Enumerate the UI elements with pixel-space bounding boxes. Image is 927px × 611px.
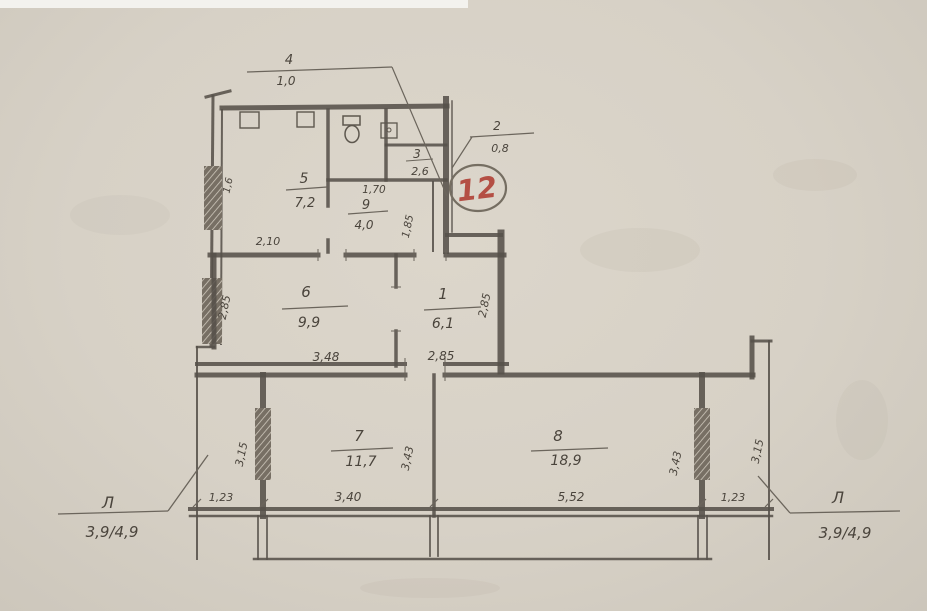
room-9: 1,70 9 4,0 1,85: [348, 184, 416, 239]
apartment-number-stamp: 12: [450, 165, 506, 211]
room-2-number: 2: [493, 119, 501, 133]
floor-plan-drawing: 4 1,0 2 0,8 12 5 7,2 2,10 1,6 1,70: [0, 0, 927, 611]
bathroom-fixtures: [240, 112, 397, 143]
loggia-right-label: Л: [831, 488, 844, 507]
dim-room8-bottom: 5,52: [558, 490, 585, 504]
room-1-area: 6,1: [432, 316, 454, 332]
dim-room1-bottom: 2,85: [428, 349, 455, 363]
room-6-number: 6: [301, 283, 311, 301]
dim-right-wall: 3,15: [749, 438, 767, 465]
room-7-number: 7: [354, 427, 364, 445]
window-hatch-upper-left-1: [204, 166, 222, 230]
loggia-right-size: 3,9/4,9: [819, 524, 872, 542]
room-6: 6 9,9 3,48 2,85: [216, 283, 348, 364]
scanned-floor-plan-page: 4 1,0 2 0,8 12 5 7,2 2,10 1,6 1,70: [0, 0, 927, 611]
dimension-ticks: [193, 499, 773, 507]
window-hatch-room8: [694, 408, 710, 480]
room-5-area: 7,2: [295, 196, 316, 211]
loggia-left-label: Л: [101, 493, 114, 512]
washbasin-icon: [381, 123, 397, 138]
dim-room9-side: 1,85: [400, 213, 417, 239]
walls-lower-block: [190, 338, 773, 559]
paper-smudges: [70, 159, 888, 598]
room-3-number: 3: [413, 147, 421, 161]
loggia-left-size: 3,9/4,9: [86, 523, 139, 541]
room-7-area: 11,7: [345, 454, 376, 470]
apartment-number: 12: [455, 170, 499, 209]
room-8-number: 8: [553, 427, 563, 445]
loggia-left-leader-line: [168, 455, 208, 511]
room-5-number: 5: [300, 171, 309, 187]
room-6-area: 9,9: [298, 315, 320, 331]
loggia-callout-left: Л 3,9/4,9: [58, 455, 208, 541]
dim-room5-bottom: 2,10: [256, 235, 281, 248]
room-4-area: 1,0: [276, 74, 295, 88]
loggia-callout-right: Л 3,9/4,9: [758, 476, 900, 542]
dim-room6-bottom: 3,48: [313, 350, 340, 364]
room-1-number: 1: [438, 285, 448, 303]
kitchen-stove-icon: [297, 112, 314, 127]
toilet-icon: [345, 126, 359, 143]
dim-room9-top: 1,70: [362, 184, 386, 196]
room-3-area: 2,6: [411, 165, 429, 178]
dim-loggia-left-depth: 1,23: [209, 491, 234, 504]
room-8-area: 18,9: [550, 453, 581, 469]
dim-loggia-right-depth: 1,23: [721, 491, 746, 504]
callout-room-2: 2 0,8: [452, 119, 534, 168]
kitchen-sink-icon: [240, 112, 259, 128]
dim-room5-window: 1,6: [222, 177, 236, 195]
room-4-number: 4: [285, 53, 293, 68]
window-hatch-room7: [255, 408, 271, 480]
room-9-area: 4,0: [354, 218, 373, 232]
room-3: 3 2,6: [406, 147, 433, 178]
room-1: 1 6,1 2,85 2,85: [424, 285, 493, 363]
room-2-area: 0,8: [491, 142, 509, 155]
room-5: 5 7,2 2,10 1,6: [222, 171, 327, 248]
toilet-tank: [343, 116, 360, 125]
dim-room7-right: 3,43: [399, 445, 417, 472]
dim-room8-right: 3,43: [667, 450, 685, 477]
dim-room7-left: 3,15: [233, 441, 251, 468]
room-2-leader-line: [452, 137, 472, 168]
dim-room1-side: 2,85: [476, 292, 494, 319]
dim-room7-bottom: 3,40: [335, 490, 362, 504]
room-9-number: 9: [362, 198, 370, 213]
